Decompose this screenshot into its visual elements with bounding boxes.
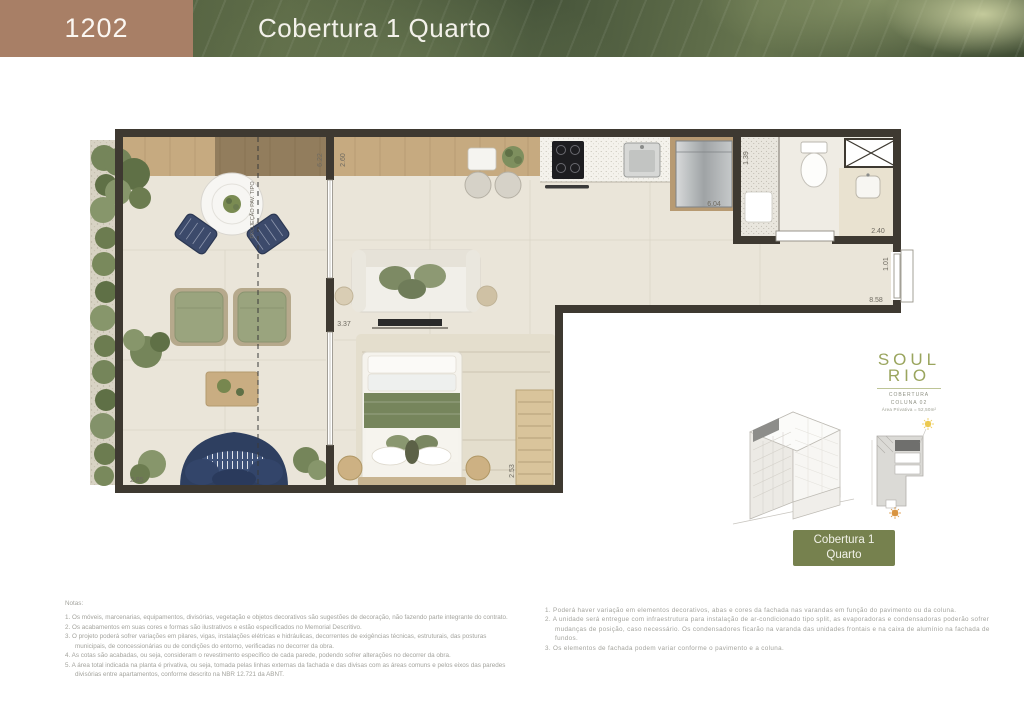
dim-strip-length: 8.58 — [869, 297, 883, 304]
logo-word-bottom: RIO — [862, 368, 956, 384]
logo-divider — [877, 388, 941, 389]
bath-vanity — [839, 168, 893, 236]
side-table — [477, 286, 497, 306]
note-item: 3. O projeto poderá sofrer variações em … — [65, 632, 512, 651]
floorplan-page: 1202 Cobertura 1 Quarto — [0, 0, 1024, 709]
building-illustration — [733, 412, 854, 524]
coffee-table — [206, 372, 258, 406]
bath-sink — [856, 176, 880, 198]
sun-icon — [889, 507, 901, 519]
unit-type-badge: Cobertura 1 Quarto — [793, 530, 895, 566]
projection-label: PROJEÇÃO PAV. TIPO — [249, 181, 256, 239]
note-item: 5. A área total indicada na planta é pri… — [65, 661, 512, 680]
duct-shaft — [845, 139, 897, 167]
plant — [502, 146, 524, 168]
dim-shower: 1.39 — [743, 151, 750, 165]
logo-caption-area: Área Privativa = 52,50m² — [862, 407, 956, 414]
stool — [495, 172, 521, 198]
badge-line-2: Quarto — [826, 548, 861, 563]
badge-line-1: Cobertura 1 — [814, 533, 875, 548]
entry-door — [891, 250, 913, 302]
side-table — [335, 287, 353, 305]
dim-kitchen-run: 6.04 — [707, 201, 721, 208]
toilet — [801, 142, 827, 187]
dim-living-top: 2.60 — [340, 153, 347, 167]
brand-logo: SOUL RIO COBERTURA COLUNA 02 Área Privat… — [862, 352, 956, 414]
note-item: 2. A unidade será entregue com infraestr… — [545, 615, 992, 643]
shower-seat — [745, 192, 772, 222]
kitchen-sink — [624, 143, 660, 177]
pouf — [338, 456, 362, 480]
tv-console — [372, 319, 448, 329]
note-item: 1. Os móveis, marcenarias, equipamentos,… — [65, 613, 512, 622]
dim-hall: 1.01 — [883, 257, 890, 271]
wardrobe — [516, 390, 553, 485]
dim-living-width: 3.37 — [337, 321, 351, 328]
kitchen-counter — [540, 137, 676, 189]
logo-caption-1: COBERTURA — [862, 392, 956, 400]
note-item: 2. Os acabamentos em suas cores e formas… — [65, 623, 512, 632]
cooktop — [552, 141, 584, 179]
bed — [358, 352, 466, 486]
dim-terrace-top: 6.22 — [317, 153, 324, 167]
notes-title: Notas: — [65, 599, 512, 608]
dim-bath-width: 2.40 — [871, 228, 885, 235]
refrigerator — [670, 137, 738, 211]
sun-icon — [922, 418, 934, 430]
bathroom-door — [776, 231, 834, 241]
note-item: 4. As cotas são acabadas, ou seja, consi… — [65, 651, 512, 660]
stool — [465, 172, 491, 198]
living-sofa — [352, 250, 480, 312]
dim-bedroom: 2.53 — [509, 464, 516, 478]
key-plan — [872, 418, 934, 519]
highlighted-unit — [895, 440, 920, 451]
notes-right: 1. Poderá haver variação em elementos de… — [545, 606, 992, 653]
note-item: 3. Os elementos de fachada podem variar … — [545, 644, 992, 653]
coffee-machine — [468, 148, 496, 170]
notes-left: Notas: 1. Os móveis, marcenarias, equipa… — [65, 599, 512, 680]
dim-terrace-bottom: 2.85 — [130, 477, 144, 484]
pouf — [466, 456, 490, 480]
note-item: 1. Poderá haver variação em elementos de… — [545, 606, 992, 615]
